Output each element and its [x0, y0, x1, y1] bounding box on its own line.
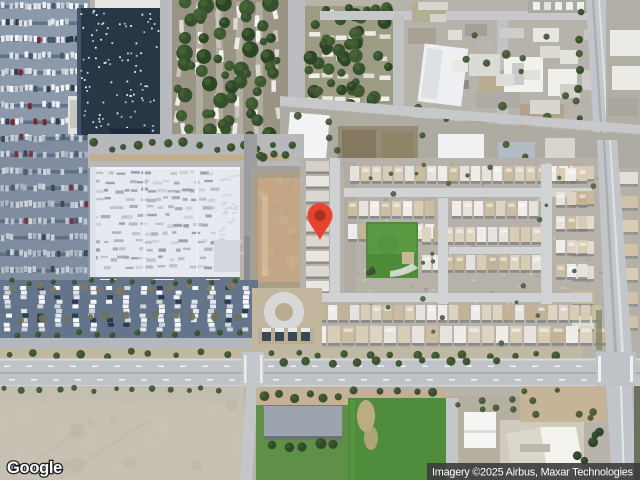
- svg-text:Imagery ©2025 Airbus, Maxar Te: Imagery ©2025 Airbus, Maxar Technologies: [432, 467, 634, 479]
- svg-text:Google: Google: [7, 459, 62, 477]
